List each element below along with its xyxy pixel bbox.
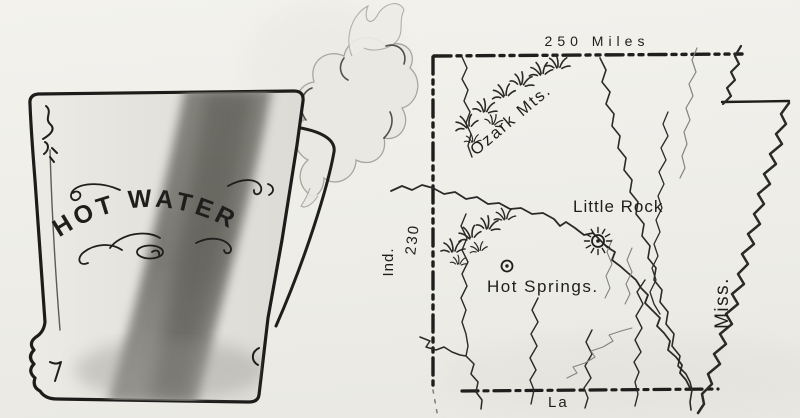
mountain-hatch-icon	[476, 214, 503, 233]
map-label-indian-territory: Ind.	[380, 247, 397, 276]
map-border-south	[462, 389, 718, 391]
mountain-hatch-icon	[490, 81, 517, 100]
map-border-north	[434, 54, 742, 56]
map-border-northeast-notch	[722, 101, 789, 102]
paper-shading	[440, 336, 800, 418]
mountain-hatch-icon	[468, 240, 488, 254]
ne-bayou-stream	[680, 48, 697, 178]
pitcher: HOT WATER	[30, 88, 334, 404]
sun-dot	[596, 239, 600, 243]
mountain-hatch-icon	[527, 60, 553, 77]
hot-springs-dot	[505, 264, 508, 267]
map-label-little-rock: Little Rock	[573, 197, 663, 216]
mountain-hatch-icon	[452, 111, 479, 131]
map-label-louisiana: La	[548, 394, 569, 411]
mountain-hatch-icon	[441, 239, 465, 252]
circled-dot-icon	[502, 261, 513, 272]
mountain-hatch-icon	[473, 97, 499, 114]
illustration-canvas: HOT WATER	[0, 0, 800, 418]
map-label-scale-north: 250 Miles	[545, 33, 650, 49]
map-label-hot-springs: Hot Springs.	[487, 277, 599, 296]
mountain-hatch-icon	[510, 70, 537, 89]
ouachita-mountain-hatching	[441, 207, 516, 266]
map-label-scale-west: 230	[402, 223, 423, 256]
pitcher-shading-base	[75, 340, 265, 400]
map-border-west-extension	[433, 390, 438, 418]
map-label-mississippi: Miss.	[712, 277, 733, 329]
book-illustration: HOT WATER	[0, 0, 800, 418]
